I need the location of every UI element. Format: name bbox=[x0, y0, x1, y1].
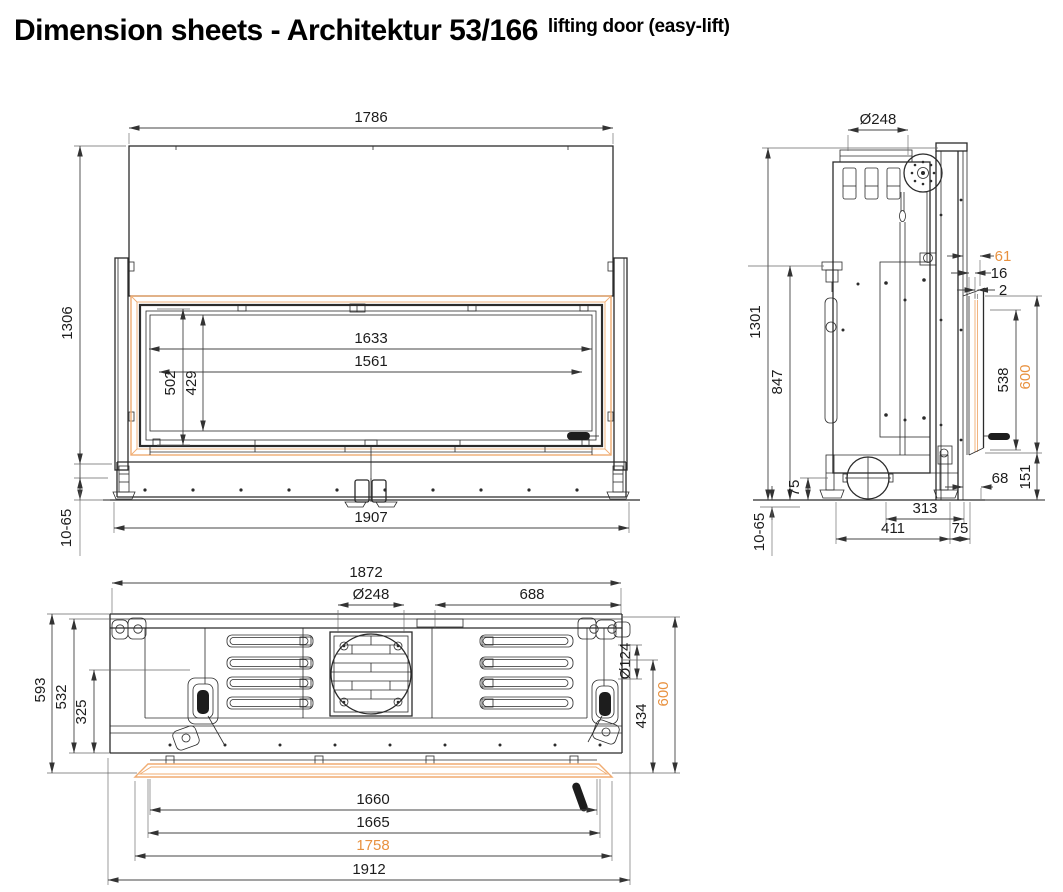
front-dimensions: 1786 1306 1633 1561 502 429 1907 bbox=[58, 109, 629, 556]
dim-side-16: 16 bbox=[991, 265, 1008, 282]
dim-top-flue: Ø248 bbox=[353, 586, 390, 603]
side-view: Ø248 61 16 2 1301 847 bbox=[747, 111, 1045, 556]
top-view: 1872 Ø248 688 593 532 325 bbox=[32, 564, 680, 885]
top-vent-slots-left bbox=[227, 635, 313, 709]
dim-front-502: 502 bbox=[162, 370, 179, 395]
front-door-handle bbox=[567, 432, 590, 440]
dim-side-75-bottom: 75 bbox=[952, 520, 969, 537]
dim-top-688: 688 bbox=[519, 586, 544, 603]
dim-top-532: 532 bbox=[53, 684, 70, 709]
dim-side-2: 2 bbox=[999, 282, 1007, 299]
dim-side-538: 538 bbox=[995, 367, 1012, 392]
dim-top-1758: 1758 bbox=[356, 837, 389, 854]
dimension-sheet-page: Dimension sheets - Architektur 53/166 li… bbox=[0, 0, 1063, 892]
front-door-frame bbox=[140, 304, 602, 446]
top-door-handle bbox=[571, 782, 589, 813]
dim-front-1561: 1561 bbox=[354, 353, 387, 370]
top-latch-right bbox=[588, 628, 618, 742]
dim-front-429: 429 bbox=[183, 370, 200, 395]
side-body bbox=[833, 150, 930, 473]
top-dimensions: 1872 Ø248 688 593 532 325 bbox=[32, 564, 680, 885]
dim-side-411: 411 bbox=[881, 520, 905, 537]
dim-top-1665: 1665 bbox=[356, 814, 389, 831]
dim-front-1633: 1633 bbox=[354, 330, 387, 347]
dim-side-68: 68 bbox=[992, 470, 1009, 487]
dim-top-600: 600 bbox=[655, 681, 672, 706]
dim-side-847: 847 bbox=[769, 369, 786, 394]
dim-front-1306: 1306 bbox=[59, 306, 76, 339]
dim-side-151: 151 bbox=[1017, 464, 1034, 489]
dim-side-flue: Ø248 bbox=[860, 111, 897, 128]
top-vent-slots-right bbox=[480, 635, 573, 709]
side-cable-and-counterweight bbox=[825, 192, 936, 455]
side-door-handle bbox=[988, 433, 1010, 440]
top-front-glass bbox=[135, 756, 612, 777]
dim-side-75-left: 75 bbox=[786, 480, 803, 497]
side-wall-anchor bbox=[822, 262, 842, 292]
dim-side-313: 313 bbox=[912, 500, 937, 517]
front-top-sheet bbox=[129, 146, 613, 296]
dim-side-foot-range: 10-65 bbox=[751, 513, 768, 551]
dim-side-600: 600 bbox=[1017, 364, 1034, 389]
dim-top-1872: 1872 bbox=[349, 564, 382, 581]
dim-top-1912: 1912 bbox=[352, 861, 385, 878]
dim-front-foot-range: 10-65 bbox=[58, 509, 75, 547]
dim-side-61: 61 bbox=[995, 248, 1012, 265]
dim-front-1907: 1907 bbox=[354, 509, 387, 526]
front-view: 1786 1306 1633 1561 502 429 1907 bbox=[58, 109, 640, 556]
dim-top-434: 434 bbox=[633, 703, 650, 728]
dim-side-1301: 1301 bbox=[747, 305, 764, 338]
dim-top-1660: 1660 bbox=[356, 791, 389, 808]
dimension-drawing: 1786 1306 1633 1561 502 429 1907 bbox=[0, 0, 1063, 892]
dim-top-124: Ø124 bbox=[617, 643, 634, 680]
side-lifting-frame bbox=[936, 143, 967, 500]
side-door-glass bbox=[963, 288, 985, 455]
dim-front-1786: 1786 bbox=[354, 109, 387, 126]
top-flue-collar bbox=[330, 632, 412, 716]
dim-top-593: 593 bbox=[32, 677, 49, 702]
dim-top-325: 325 bbox=[73, 699, 90, 724]
side-dimensions: Ø248 61 16 2 1301 847 bbox=[747, 111, 1045, 556]
